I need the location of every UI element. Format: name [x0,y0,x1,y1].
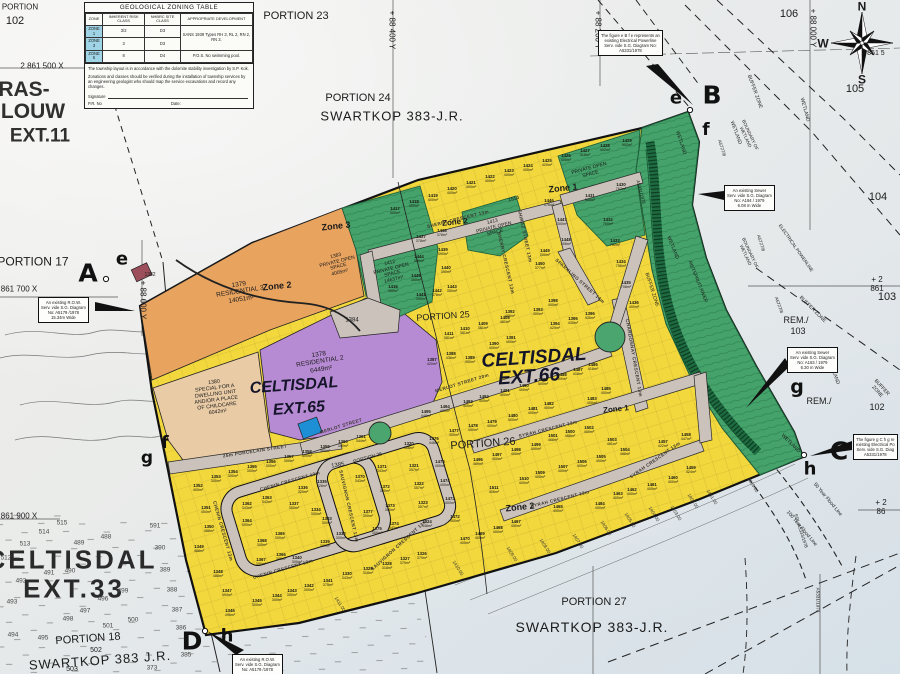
map-label: PORTION [2,4,38,13]
lot-label: 1458447m² [681,433,691,441]
map-label: EXT.11 [10,125,70,146]
boundary-letter: h [804,459,817,480]
traffic-circle-park-east [595,322,625,352]
lot-label: 1494400m² [440,405,450,413]
lot-label: 1509400m² [535,471,545,479]
map-label: 102 [869,402,884,412]
lot-label: 1329318m² [363,567,373,575]
map-label: PORTION 24 [325,92,390,104]
lot-label: 1395435m² [568,317,578,325]
lot-label: 1398400m² [548,299,558,307]
map-label: SWARTKOP 383-J.R. [516,620,669,636]
boundary-letter: h [221,626,234,647]
lot-label: 1358300m² [302,450,312,458]
geo-zone5-risk: 8 [103,50,145,62]
map-label: + 2 861 [866,276,889,294]
lot-label: 1427418m² [580,149,590,157]
lot-label: 1361344m² [356,435,366,443]
lot-label: 1501468m² [548,434,558,442]
callout-note: The figure g C h g reexisting Electrical… [853,434,898,460]
lot-label: 1488400m² [557,373,567,381]
lot-label: 1353300m² [211,475,221,483]
parcel-number: 514 [39,529,50,536]
lot-label: 1366300m² [276,553,286,561]
lot-label: 1396435m² [585,312,595,320]
lot-label: 1437378m² [416,235,426,243]
boundary-letter: C [830,437,848,466]
lot-label: 1477400m² [449,429,459,437]
lot-label: 1493400m² [463,400,473,408]
compass-rose-icon [831,12,893,74]
geo-col-risk: INHERENT RISK CLASS [103,14,145,26]
lot-label: 1449300m² [540,249,550,257]
lot-label: 1485400m² [601,387,611,395]
parcel-number: 496 [98,596,109,603]
map-label: 861 700 X [1,286,37,295]
lot-label: 1363343m² [262,496,272,504]
lot-label: 1502400m² [584,426,594,434]
map-label: EXT.33 [23,574,125,603]
lot-label: 1459424m² [686,466,696,474]
lot-label: 1411381m² [444,332,454,340]
lot-label: 1364300m² [242,519,252,527]
lot-label: 1327379m² [400,557,410,565]
map-label: EXT.65 [272,398,325,420]
parcel-number: 493 [7,599,18,606]
lot-label: 1416400m² [388,285,398,293]
lot-label: 1463400m² [613,492,623,500]
lot-label: 1450377m² [535,262,545,270]
lot-label: 1510400m² [519,477,529,485]
lot-label: 1354300m² [228,470,238,478]
lot-label: 1422400m² [485,175,495,183]
geo-dev-merged: SANS 1939 Types RH 3, RL 2, RN 2, RN 3. [180,25,252,50]
parcel-number: 389 [160,567,171,574]
parcel-number: 499 [118,588,129,595]
lot-label: 1442378m² [432,289,442,297]
lot-label: 1430762m² [616,183,626,191]
map-label: PORTION 17 [0,255,69,268]
lot-label: 1320368m² [404,442,414,450]
lot-label: 1344300m² [272,594,282,602]
map-label: + 88 600 Y [138,281,147,320]
parcel-number: 501 [103,623,114,630]
parcel-number: 387 [172,607,183,614]
geo-zone3-risk: 3 [103,38,145,50]
geo-col-development: APPROPRIATE DEVELOPMENT [180,14,252,26]
geo-col-zone: ZONE [86,14,103,26]
map-label: 861 900 X [1,513,37,522]
lot-label: 1377300m² [363,510,373,518]
lot-label: 1324448m² [422,520,432,528]
lot-label: 1394420m² [550,322,560,330]
lot-label: 1495448m² [421,410,431,418]
lot-label: 1356300m² [266,460,276,468]
lot-label: 1432760m² [603,218,613,226]
geo-zone1-risk: 3/2 [103,25,145,37]
lot-label: 1365300m² [275,532,285,540]
lot-label: 1436400m² [629,301,639,309]
lot-label: 1480400m² [508,414,518,422]
geo-note-2: Zonations and classes should be verified… [88,74,250,90]
lot-label: 1374343m² [389,522,399,530]
lot-label: 1425420m² [542,159,552,167]
lot-label: 1341375m² [323,579,333,587]
parcel-number: 388 [167,587,178,594]
lot-label: 1444350m² [414,255,424,263]
lot-label: 1370343m² [355,475,365,483]
lot-label: 1342300m² [304,584,314,592]
lot-label: 1410381m² [460,327,470,335]
parcel-number: 495 [38,635,49,642]
lot-label: 1330343m² [342,572,352,580]
lot-label: 1390400m² [489,342,499,350]
parcel-number: 513 [20,541,31,548]
parcel-number: 373 [147,665,158,672]
boundary-letter: e [670,88,682,109]
lot-label: 1443350m² [447,285,457,293]
lot-label: 1352400m² [193,484,203,492]
parcel-number: 498 [63,616,74,623]
lot-label: 1500468m² [565,430,575,438]
lot-label: 1438378m² [437,229,447,237]
lot-label: 1448306m² [561,238,571,246]
parcel-number: 494 [8,632,19,639]
lot-label: 1435708m² [621,281,631,289]
lot-label: 1482400m² [544,402,554,410]
geo-table-title: GEOLOGICAL ZONING TABLE [85,3,253,13]
lot-label: 1483400m² [587,397,597,405]
lot-label: 1486418m² [588,363,598,371]
lot-label: 1417400m² [390,207,400,215]
lot-label: 1348488m² [213,570,223,578]
lot-label: 1498400m² [511,448,521,456]
lot-label: 1326379m² [417,552,427,560]
map-label: + 88 000 Y [808,9,817,48]
lot-label: 1343300m² [287,589,297,597]
lot-label: 1479400m² [487,420,497,428]
lot-label: 1457422m² [658,440,668,448]
geological-zoning-table: GEOLOGICAL ZONING TABLE ZONE INHERENT RI… [84,2,254,109]
lot-label: 1333300m² [322,517,332,525]
signature-label: Signature [88,94,106,99]
callout-note: An existing R.O.W.Serv. vide S.G. Diagra… [232,654,283,674]
lot-label: 1335328m² [317,480,327,488]
map-label: 103 [790,326,805,336]
boundary-letter: f [702,120,709,140]
lot-label: 1332300m² [336,532,346,540]
lot-label: 1473400m² [445,497,455,505]
geo-zone1: ZONE 1 [86,25,103,37]
lot-label: 1346496m² [225,609,235,617]
lot-label: 1484400m² [595,502,605,510]
map-label: N [858,0,867,13]
parcel-number: 497 [80,608,91,615]
lot-label: 1481400m² [528,407,538,415]
map-label: CELTISDAL [0,545,157,574]
lot-label: 1507400m² [558,465,568,473]
map-label: A5331/1978 [815,588,820,613]
parcel-number: 491 [44,570,55,577]
parcel-number: 390 [155,545,166,552]
map-label: 1384 [345,318,358,325]
map-label: PORTION 27 [561,596,626,608]
lot-label: 1359300m² [320,445,330,453]
lot-label: 1392400m² [505,310,515,318]
township-map-sheet: GEOLOGICAL ZONING TABLE ZONE INHERENT RI… [0,0,900,674]
geo-col-site: NHBRC SITE CLASS [145,14,181,26]
geo-zone5: ZONE 5 [86,50,103,62]
boundary-letter: f [161,433,168,453]
lot-label: 1504488m² [620,448,630,456]
lot-label: 1496489m² [473,458,483,466]
map-label: LOUW [1,100,65,124]
lot-label: 1476446m² [429,437,439,445]
callout-note: An existing SewerServ. vide S.G. Diagram… [724,185,775,211]
lot-label: 1447300m² [557,218,567,226]
callout-note: The figure e B f e represents anexisting… [598,30,663,56]
map-label: + 2 86 [872,499,891,517]
lot-label: 1424400m² [523,164,533,172]
lot-label: 1506400m² [577,460,587,468]
map-label: 106 [780,8,798,20]
map-label: 1380 SPECIAL FOR A DWELLING UNIT AND/OR … [192,378,240,419]
pr-no-label: P.R. No [88,101,102,106]
lot-label: 1492400m² [479,395,489,403]
lot-label: 1505400m² [596,455,606,463]
lot-label: 1418400m² [409,200,419,208]
lot-label: 1419400m² [428,194,438,202]
geo-note-1: The township layout is in accordance wit… [88,66,250,71]
lot-label: 1499400m² [531,443,541,451]
lot-label: 1409381m² [478,322,488,330]
geo-zone1-site: D3 [145,25,181,37]
map-label: W [817,37,828,50]
lot-label: 1323357m² [418,501,428,509]
lot-label: 1322357m² [414,482,424,490]
lot-label: 1478400m² [468,424,478,432]
lot-label: 1337300m² [289,502,299,510]
map-label: 2 861 5 [861,50,884,58]
lot-label: 1388436m² [446,352,456,360]
lot-label: 1349488m² [194,545,204,553]
parcel-number: 512 [1,555,12,562]
parcel-number: 490 [65,568,76,575]
geo-zone3-site: D3 [145,38,181,50]
boundary-letter: B [702,81,721,110]
map-label: REM./ [806,396,831,406]
geo-zone3: ZONE 3 [86,38,103,50]
lot-label: 1423400m² [504,169,514,177]
lot-label: 1445350m² [411,274,421,282]
lot-label: 1393400m² [533,308,543,316]
lot-label: 1351454m² [201,506,211,514]
lot-label: 1470400m² [460,537,470,545]
lot-label: 1465400m² [553,505,563,513]
map-label: RAS- [0,78,50,102]
lot-label: 1461400m² [647,483,657,491]
lot-label: 1431584m² [585,194,595,202]
lot-label: 1440390m² [441,266,451,274]
boundary-letter: A [78,259,97,288]
lot-label: 1328318m² [382,562,392,570]
lot-label: 1434756m² [616,260,626,268]
map-label: + 88 400 Y [387,11,396,50]
lot-label: 1347494m² [222,589,232,597]
map-label: REM./ [783,315,808,325]
parcel-number: 489 [74,540,85,547]
lot-label: 1468400m² [493,526,503,534]
lot-label: 1428402m² [600,144,610,152]
lot-label: 1439390m² [438,248,448,256]
parcel-number: 492 [16,578,27,585]
lot-label: 1426400m² [561,154,571,162]
lot-label: 1420400m² [447,187,457,195]
map-label: 104 [869,191,887,203]
parcel-number: 515 [57,520,68,527]
lot-label: 1460400m² [668,476,678,484]
lot-label: 1387420m² [427,358,437,366]
lot-label: 1446378m² [544,199,554,207]
boundary-letter: e [116,249,128,270]
boundary-letter: D [182,627,203,656]
map-label: 2 861 500 X [20,63,63,72]
lot-label: 1441390m² [416,293,426,301]
date-label: Date: [171,101,181,106]
lot-label: 1357300m² [284,455,294,463]
lot-label: 1360300m² [338,440,348,448]
lot-label: 1368300m² [257,539,267,547]
map-label: 102 [6,15,24,27]
lot-label: 1350488m² [204,525,214,533]
callout-note: An existing R.O.W.Serv. vide S.G. Diagra… [38,297,89,323]
lot-label: 1334300m² [311,508,321,516]
lot-label: 1433760m² [610,239,620,247]
parcel-number: 591 [150,523,161,530]
lot-label: 1511406m² [489,486,499,494]
boundary-letter: g [790,376,804,398]
lot-label: 1367300m² [256,558,266,566]
lot-label: 1491400m² [500,389,510,397]
map-label: PORTION 23 [263,10,328,22]
lot-label: 1391400m² [506,336,516,344]
lot-label: 1362343m² [242,502,252,510]
lot-label: 1372300m² [380,485,390,493]
geo-zone5-site: D4 [145,50,181,62]
lot-label: 1489400m² [538,378,548,386]
lot-label: 1487418m² [573,368,583,376]
lot-label: 1421400m² [466,181,476,189]
map-label: S [858,73,866,86]
lot-label: 1355300m² [247,465,257,473]
lot-label: 1475400m² [435,460,445,468]
parcel-number: 488 [101,534,112,541]
lot-label: 1336320m² [298,486,308,494]
lot-label: 1474400m² [440,479,450,487]
lot-label: 1340300m² [292,556,302,564]
lot-label: 1389400m² [465,356,475,364]
lot-label: 1371343m² [377,465,387,473]
lot-label: 1429902m² [622,139,632,147]
lot-label: 1373300m² [385,504,395,512]
lot-label: 1503481m² [607,438,617,446]
lot-label: 1375300m² [372,527,382,535]
lot-label: 1462400m² [627,488,637,496]
parcel-number: 500 [128,617,139,624]
geo-dev-pos: P.O.S. No swimming pool. [180,50,252,62]
lot-label: 1497400m² [492,453,502,461]
boundary-letter: g [141,448,153,468]
lot-label: 1467400m² [511,520,521,528]
lot-label: 1321357m² [409,464,419,472]
lot-label: 1472400m² [450,515,460,523]
traffic-circle-park-west [369,422,391,444]
map-label: SWARTKOP 383-J.R. [320,110,463,125]
map-label: 1382 [144,273,155,279]
callout-note: An existing SewerServ. vide S.G. Diagram… [787,347,838,373]
lot-label: 1345300m² [252,599,262,607]
lot-label: 1339300m² [320,540,330,548]
lot-label: 1490400m² [519,384,529,392]
lot-label: 1469400m² [475,532,485,540]
